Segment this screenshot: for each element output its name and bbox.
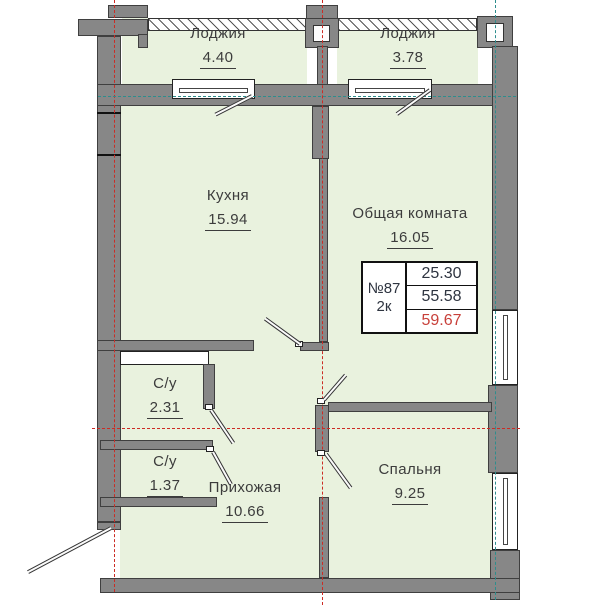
loggia-left-wall-stub bbox=[138, 34, 148, 48]
axis-line-red-center bbox=[322, 0, 323, 605]
room-label-bathroom-upper: С/у 2.31 bbox=[120, 376, 210, 419]
area-value-row1: 25.30 bbox=[407, 263, 476, 286]
bedroom-top-wall bbox=[328, 402, 492, 412]
apartment-id-cell: №87 2к bbox=[363, 263, 407, 332]
room-area: 3.78 bbox=[390, 50, 427, 70]
wall-joint-mark bbox=[97, 154, 121, 156]
apartment-number: №87 bbox=[368, 280, 401, 298]
floor-plan: Лоджия 4.40 Лоджия 3.78 Кухня 15.94 Обща… bbox=[0, 0, 605, 605]
loggia-window-wall bbox=[97, 84, 518, 106]
area-value-total: 59.67 bbox=[407, 310, 476, 332]
duct-niche bbox=[120, 351, 209, 365]
axis-line-teal-horizontal bbox=[98, 96, 516, 97]
kitchen-living-wall bbox=[319, 158, 328, 342]
apartment-rooms-count: 2к bbox=[377, 298, 392, 316]
room-area: 9.25 bbox=[392, 486, 429, 506]
room-area: 10.66 bbox=[222, 504, 268, 524]
room-area: 2.31 bbox=[147, 400, 184, 420]
bathroom-divider-wall bbox=[100, 440, 213, 450]
axis-line-red-horizontal bbox=[92, 428, 520, 429]
room-label-living-room: Общая комната 16.05 bbox=[340, 206, 480, 249]
hall-bedroom-wall bbox=[319, 497, 329, 578]
apartment-info-box: №87 2к 25.30 55.58 59.67 bbox=[361, 261, 478, 334]
room-label-kitchen: Кухня 15.94 bbox=[168, 188, 288, 231]
room-area: 4.40 bbox=[200, 50, 237, 70]
room-name: С/у bbox=[120, 376, 210, 393]
axis-line-teal-right bbox=[495, 0, 496, 600]
room-label-hallway: Прихожая 10.66 bbox=[184, 480, 306, 523]
room-name: Спальня bbox=[350, 462, 470, 479]
kitchen-living-column bbox=[312, 106, 329, 159]
room-name: Лоджия bbox=[348, 26, 468, 43]
room-area: 1.37 bbox=[147, 478, 184, 498]
room-label-loggia-right: Лоджия 3.78 bbox=[348, 26, 468, 69]
entrance-door-leaf bbox=[27, 526, 112, 574]
room-name: Общая комната bbox=[340, 206, 480, 223]
bottom-exterior-wall bbox=[100, 578, 520, 593]
room-name: Лоджия bbox=[158, 26, 278, 43]
area-value-row2: 55.58 bbox=[407, 286, 476, 309]
right-exterior-wall-middle bbox=[488, 385, 518, 473]
room-area: 16.05 bbox=[387, 230, 433, 250]
room-label-loggia-left: Лоджия 4.40 bbox=[158, 26, 278, 69]
room-name: Прихожая bbox=[184, 480, 306, 497]
apartment-areas-cell: 25.30 55.58 59.67 bbox=[407, 263, 476, 332]
kitchen-door-stub-wall bbox=[300, 342, 329, 351]
room-area: 15.94 bbox=[205, 212, 251, 232]
room-name: Кухня bbox=[168, 188, 288, 205]
room-name: С/у bbox=[120, 454, 210, 471]
kitchen-bottom-wall bbox=[97, 340, 254, 351]
room-label-bedroom: Спальня 9.25 bbox=[350, 462, 470, 505]
axis-line-red-left bbox=[114, 0, 115, 592]
wall-joint-mark bbox=[97, 112, 121, 114]
